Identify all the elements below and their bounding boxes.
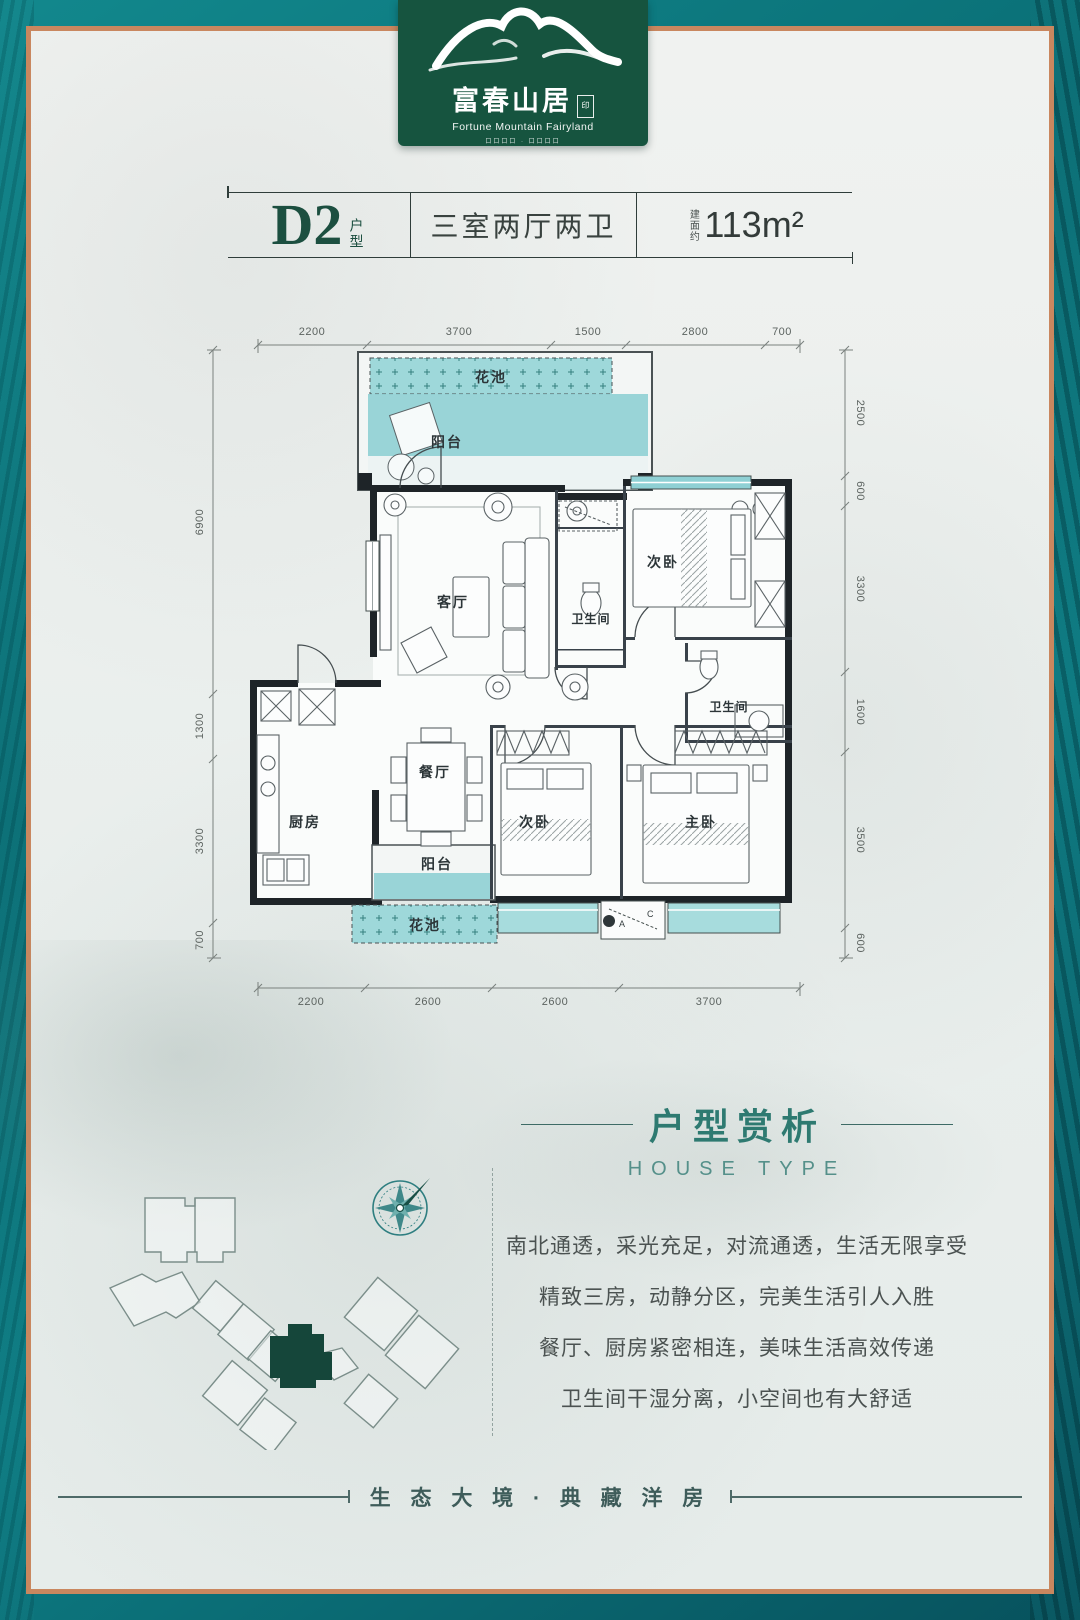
dim-bottom: 2600 <box>542 996 568 1008</box>
analysis-description: 南北通透，采光充足，对流通透，生活无限享受 精致三房，动静分区，完美生活引人入胜… <box>497 1221 977 1425</box>
dim-right: 2500 <box>854 400 866 426</box>
brand-name-en: Fortune Mountain Fairyland <box>398 121 648 133</box>
dim-left: 3300 <box>195 828 206 854</box>
compass-icon <box>373 1178 430 1235</box>
dim-top: 2200 <box>299 326 325 338</box>
dim-right: 600 <box>854 481 866 501</box>
title-rule-right <box>841 1124 953 1125</box>
unit-title-bar: D2 户型 三室两厅两卫 建面约 113m² <box>228 192 852 258</box>
site-buildings <box>110 1198 459 1450</box>
title-bar-tick <box>227 186 229 198</box>
brand-tagline: 口口口口 · 口口口口 <box>398 136 648 145</box>
analysis-line: 餐厅、厨房紧密相连，美味生活高效传递 <box>497 1323 977 1374</box>
dim-left: 700 <box>195 930 206 950</box>
analysis-line: 卫生间干湿分离，小空间也有大舒适 <box>497 1374 977 1425</box>
floor-plan: A C <box>195 295 885 1015</box>
room-label-balcony-bottom: 阳台 <box>421 856 453 872</box>
dim-top: 3700 <box>446 326 472 338</box>
title-bar-tick <box>852 252 854 264</box>
dim-top: 1500 <box>575 326 601 338</box>
dim-left: 1300 <box>195 713 206 739</box>
unit-code: D2 <box>272 196 343 254</box>
analysis-line: 精致三房，动静分区，完美生活引人入胜 <box>497 1272 977 1323</box>
footer-rule-right <box>730 1496 1022 1498</box>
area-prefix: 建面约 <box>685 209 700 242</box>
dim-bottom: 2200 <box>298 996 324 1008</box>
dim-top: 2800 <box>682 326 708 338</box>
room-label-bedroom-top: 次卧 <box>647 554 679 570</box>
room-label-bedroom-bottom: 次卧 <box>519 814 551 830</box>
footer: 生 态 大 境 · 典 藏 洋 房 <box>0 1482 1080 1512</box>
house-type-analysis: 户型赏析 HOUSE TYPE 南北通透，采光充足，对流通透，生活无限享受 精致… <box>497 1098 977 1425</box>
area-cell: 建面约 113m² <box>636 193 852 257</box>
brand-name-cn: 富春山居 <box>452 79 572 118</box>
analysis-subtitle: HOUSE TYPE <box>497 1158 977 1181</box>
analysis-title: 户型赏析 <box>649 1098 825 1150</box>
dim-bottom: 2600 <box>415 996 441 1008</box>
dim-right: 3300 <box>854 576 866 602</box>
dim-right: 600 <box>854 933 866 953</box>
brand-badge: 富春山居 印 Fortune Mountain Fairyland 口口口口 ·… <box>398 0 648 146</box>
footer-rule-left <box>58 1496 350 1498</box>
room-label-kitchen: 厨房 <box>289 814 321 830</box>
room-label-flower-bottom: 花池 <box>409 917 441 933</box>
dim-left: 6900 <box>195 509 206 535</box>
dim-right: 1600 <box>854 699 866 725</box>
analysis-line: 南北通透，采光充足，对流通透，生活无限享受 <box>497 1221 977 1272</box>
mountain-logo-icon <box>398 0 648 78</box>
site-highlight-building <box>270 1324 332 1388</box>
balcony-bottom <box>372 845 495 900</box>
poster-root: 富春山居 印 Fortune Mountain Fairyland 口口口口 ·… <box>0 0 1080 1620</box>
ac-label-a: A <box>619 919 625 929</box>
area-value: 113m² <box>704 204 803 246</box>
room-label-bath2: 卫生间 <box>709 699 748 714</box>
footer-slogan: 生 态 大 境 · 典 藏 洋 房 <box>370 1482 711 1512</box>
dashed-divider <box>492 1168 493 1436</box>
room-label-dining: 餐厅 <box>418 764 451 780</box>
room-label-flower-top: 花池 <box>475 369 507 385</box>
unit-code-suffix: 户型 <box>346 218 366 250</box>
room-label-master: 主卧 <box>685 814 717 830</box>
dim-bottom: 3700 <box>696 996 722 1008</box>
dim-right: 3500 <box>854 827 866 853</box>
site-plan <box>100 1160 480 1450</box>
ac-label-c: C <box>647 909 654 919</box>
room-layout-cell: 三室两厅两卫 <box>410 193 636 257</box>
room-label-living: 客厅 <box>436 594 469 610</box>
brand-seal: 印 <box>577 95 594 118</box>
dim-top: 700 <box>772 326 792 338</box>
title-rule-left <box>521 1124 633 1125</box>
unit-code-cell: D2 户型 <box>228 193 410 257</box>
room-label-balcony-top: 阳台 <box>431 434 463 450</box>
room-label-bath1: 卫生间 <box>571 611 610 626</box>
